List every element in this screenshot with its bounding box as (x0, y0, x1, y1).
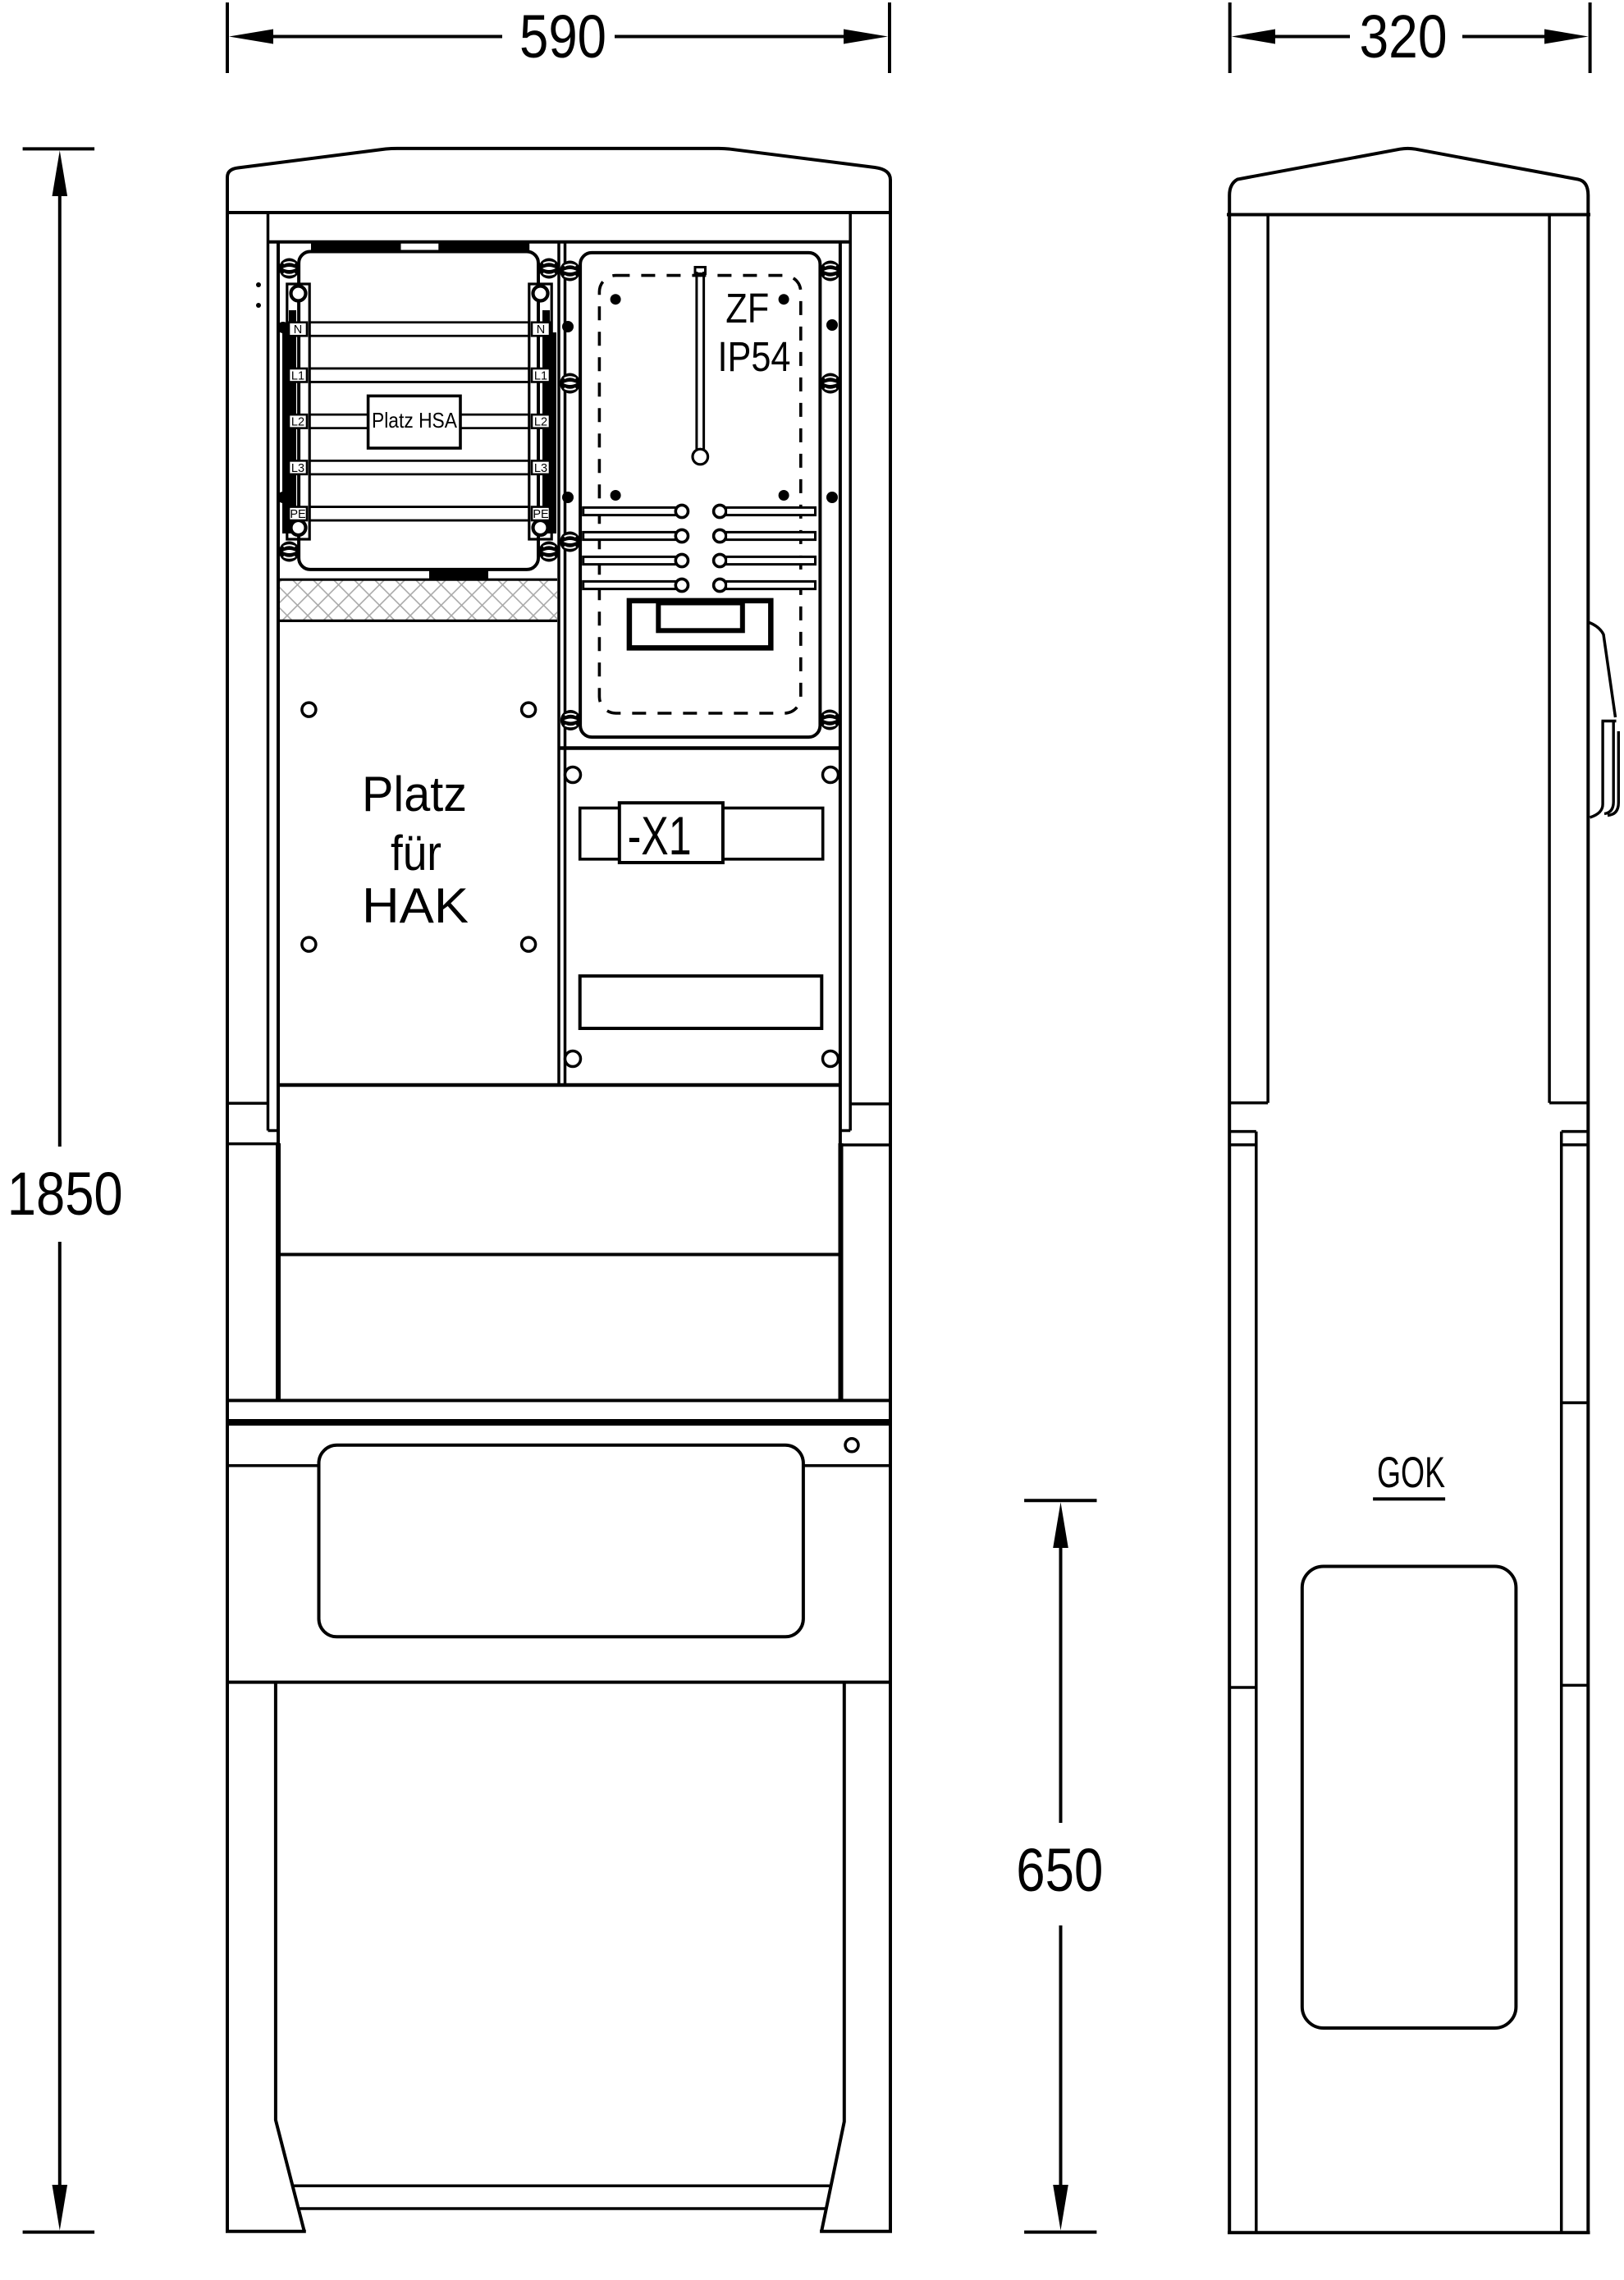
svg-text:ZF: ZF (725, 285, 769, 332)
svg-text:-X1: -X1 (628, 805, 692, 866)
svg-text:L3: L3 (291, 462, 304, 475)
svg-text:HAK: HAK (362, 878, 469, 933)
svg-text:Platz: Platz (362, 767, 467, 822)
svg-text:L2: L2 (534, 416, 547, 429)
svg-text:N: N (294, 323, 302, 337)
svg-text:650: 650 (1016, 1836, 1103, 1904)
svg-text:Platz HSA: Platz HSA (372, 408, 458, 433)
svg-text:590: 590 (519, 2, 606, 71)
svg-text:N: N (537, 323, 545, 337)
svg-text:PE: PE (533, 508, 549, 521)
svg-text:320: 320 (1360, 2, 1448, 71)
svg-text:L1: L1 (534, 369, 547, 382)
svg-text:für: für (391, 826, 441, 881)
svg-text:IP54: IP54 (718, 333, 791, 380)
svg-text:L3: L3 (534, 462, 547, 475)
svg-text:PE: PE (290, 508, 306, 521)
svg-text:L1: L1 (291, 369, 304, 382)
svg-text:GOK: GOK (1377, 1449, 1445, 1497)
svg-text:1850: 1850 (7, 1160, 123, 1228)
svg-text:L2: L2 (291, 416, 304, 429)
